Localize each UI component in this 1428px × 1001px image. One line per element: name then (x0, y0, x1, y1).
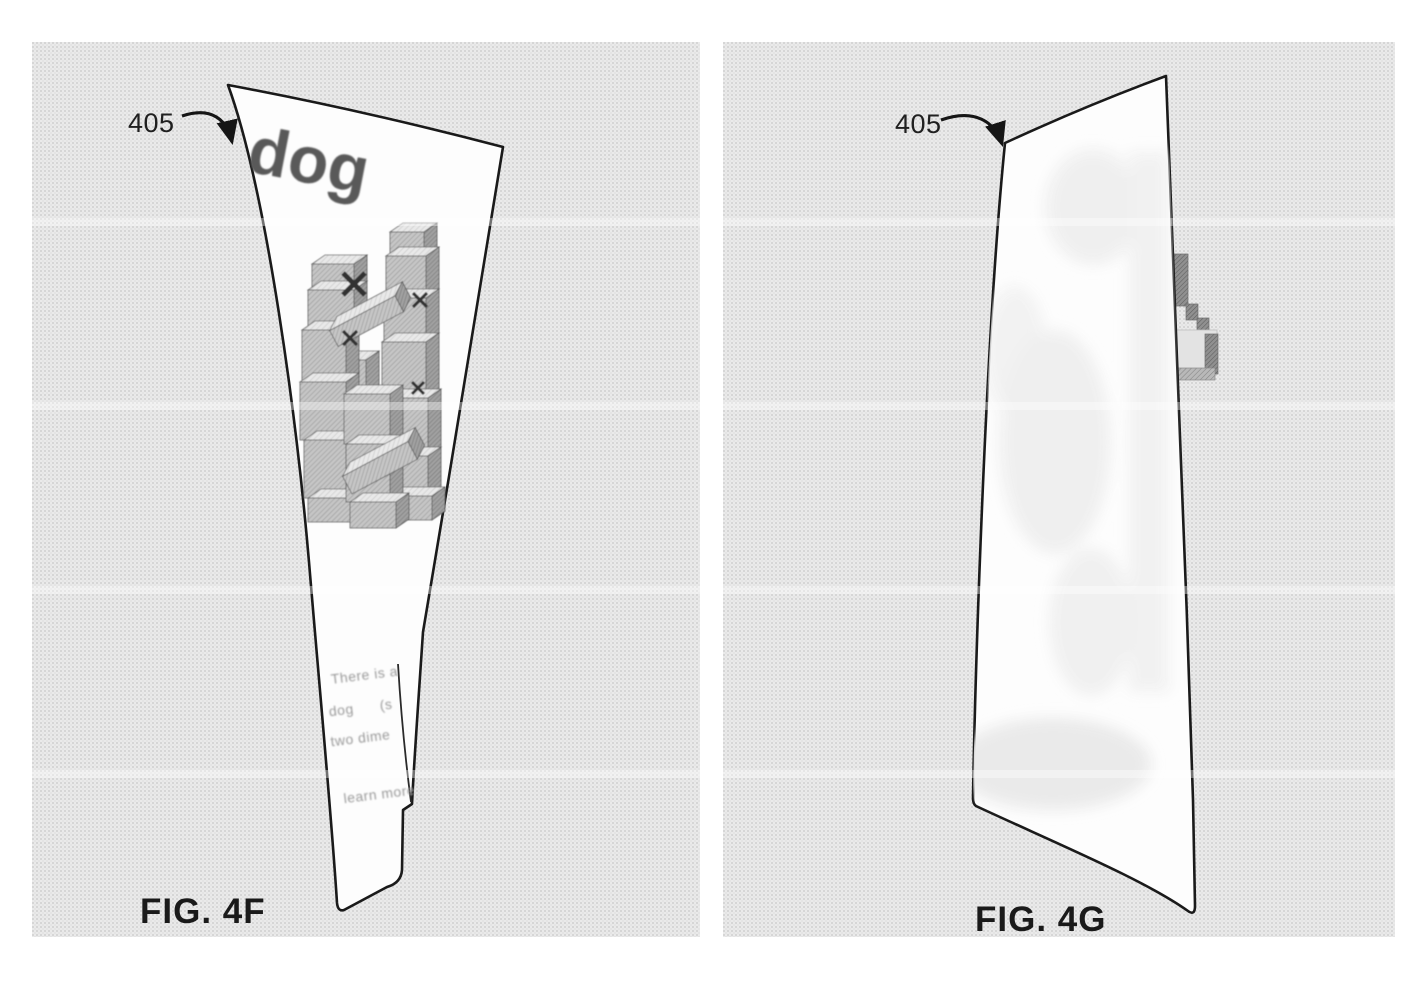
reference-numeral-405: 405 (128, 108, 175, 139)
figure-label-4f: FIG. 4F (140, 892, 266, 932)
figure-4f-panel: 405 dog There is a dog (s two dime learn… (32, 42, 700, 937)
figure-label-4g: FIG. 4G (975, 900, 1106, 940)
voxel-fragment-overhang (1173, 254, 1218, 380)
reference-numeral-405: 405 (895, 109, 942, 140)
search-snippet-text: There is a dog (s two dime learn more (322, 656, 471, 831)
figure-4g-panel: 405 FIG. 4G (723, 42, 1395, 937)
snippet-line: two dime (330, 726, 392, 749)
sheet-back-drawing (723, 42, 1395, 937)
snippet-line: learn more (343, 782, 416, 807)
leader-arrow-405 (182, 113, 232, 142)
snippet-line: dog (s (328, 696, 393, 720)
patent-figure-page: 405 dog There is a dog (s two dime learn… (0, 0, 1428, 1001)
leader-arrow-405 (941, 116, 1002, 144)
